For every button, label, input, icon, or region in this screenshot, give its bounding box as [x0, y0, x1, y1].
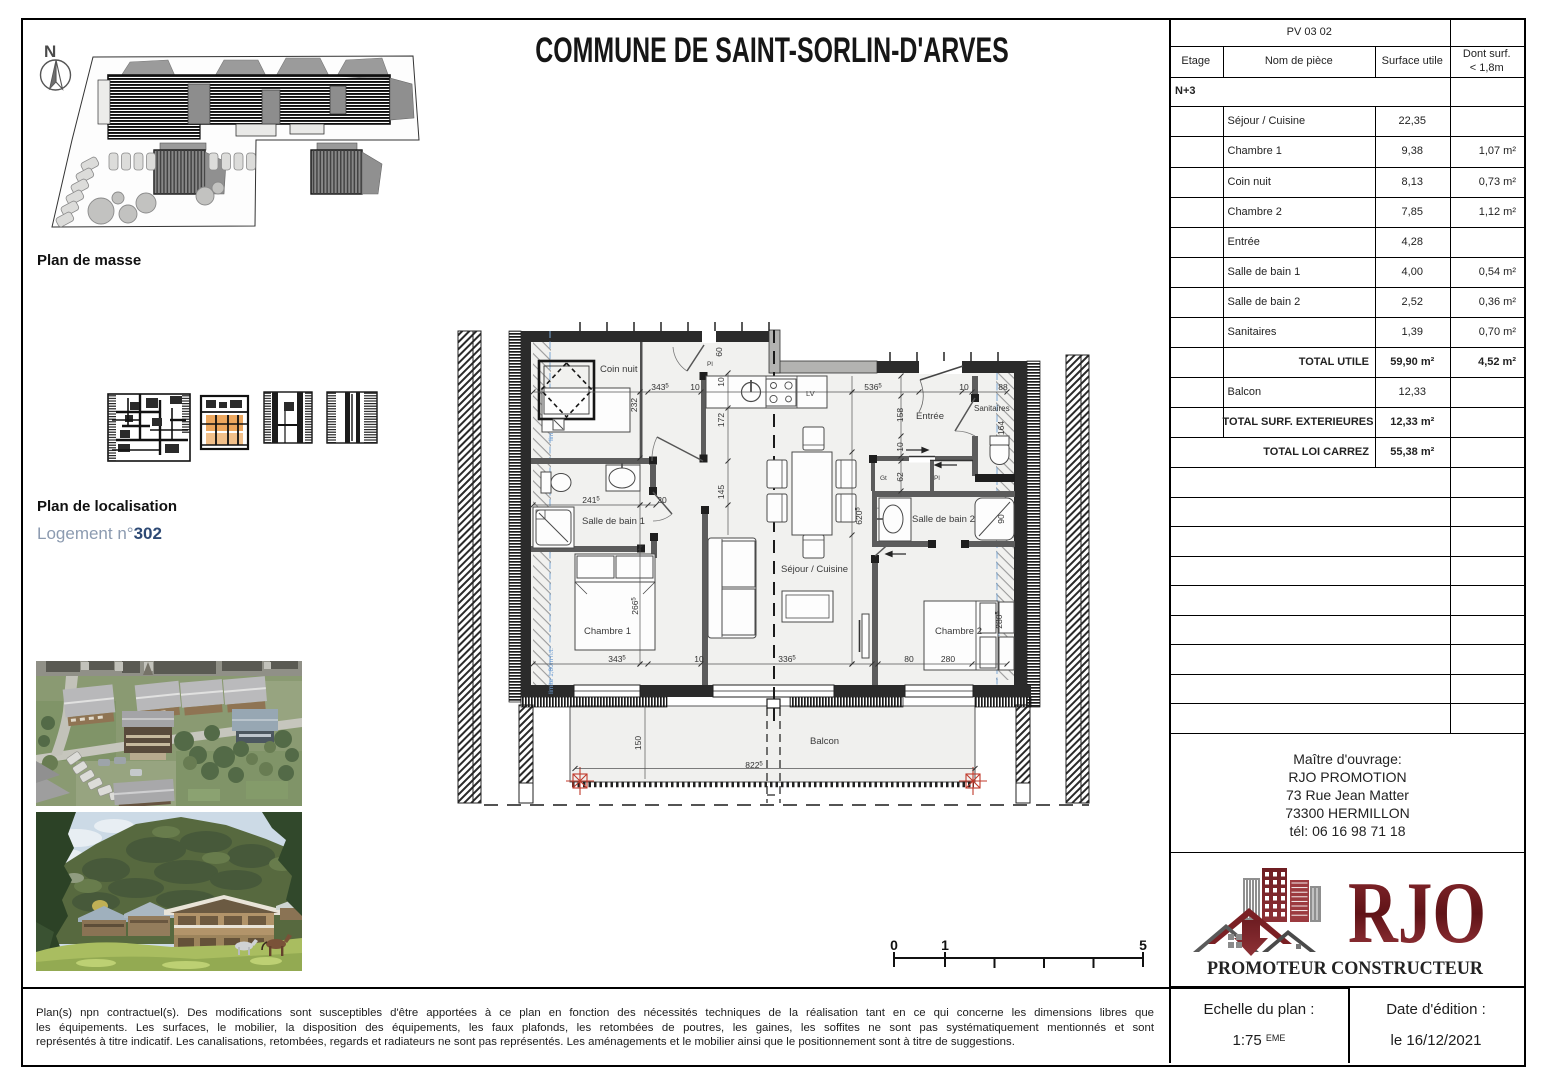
svg-text:Pl: Pl [707, 361, 713, 368]
svg-text:RJO: RJO [1348, 865, 1486, 962]
svg-text:5: 5 [1139, 937, 1147, 953]
svg-text:Gt: Gt [880, 475, 887, 482]
svg-text:Séjour / Cuisine: Séjour / Cuisine [781, 564, 848, 575]
svg-text:Chambre 1: Chambre 1 [584, 626, 631, 637]
svg-text:10: 10 [690, 382, 700, 392]
svg-text:10: 10 [959, 382, 969, 392]
svg-text:158: 158 [895, 408, 905, 422]
svg-text:20: 20 [657, 495, 667, 505]
svg-text:90: 90 [996, 514, 1006, 524]
svg-text:Chambre 2: Chambre 2 [935, 626, 982, 637]
svg-text:172: 172 [716, 413, 726, 427]
svg-text:88: 88 [998, 382, 1008, 392]
svg-text:145: 145 [716, 485, 726, 499]
svg-text:62: 62 [895, 472, 905, 482]
svg-text:0: 0 [890, 937, 898, 953]
svg-text:150: 150 [633, 736, 643, 750]
svg-text:Entrée: Entrée [916, 411, 944, 422]
svg-text:232: 232 [629, 398, 639, 412]
svg-text:limite 1,80m h.t.: limite 1,80m h.t. [548, 648, 555, 694]
svg-text:PROMOTEUR CONSTRUCTEUR: PROMOTEUR CONSTRUCTEUR [1207, 958, 1483, 979]
svg-text:1: 1 [941, 937, 949, 953]
svg-text:10: 10 [716, 377, 726, 387]
svg-text:10: 10 [694, 654, 704, 664]
svg-text:Pl: Pl [934, 475, 940, 482]
svg-text:LV: LV [806, 389, 815, 398]
svg-text:60: 60 [714, 347, 724, 357]
svg-text:Sanitaires: Sanitaires [974, 404, 1010, 413]
svg-text:80: 80 [904, 654, 914, 664]
svg-text:10: 10 [895, 442, 905, 452]
svg-text:Balcon: Balcon [810, 736, 839, 747]
svg-text:280: 280 [941, 654, 955, 664]
svg-text:164: 164 [996, 421, 1006, 435]
svg-text:Coin nuit: Coin nuit [600, 364, 638, 375]
svg-text:Salle de bain 1: Salle de bain 1 [582, 516, 645, 527]
svg-text:Salle de bain 2: Salle de bain 2 [912, 514, 975, 525]
